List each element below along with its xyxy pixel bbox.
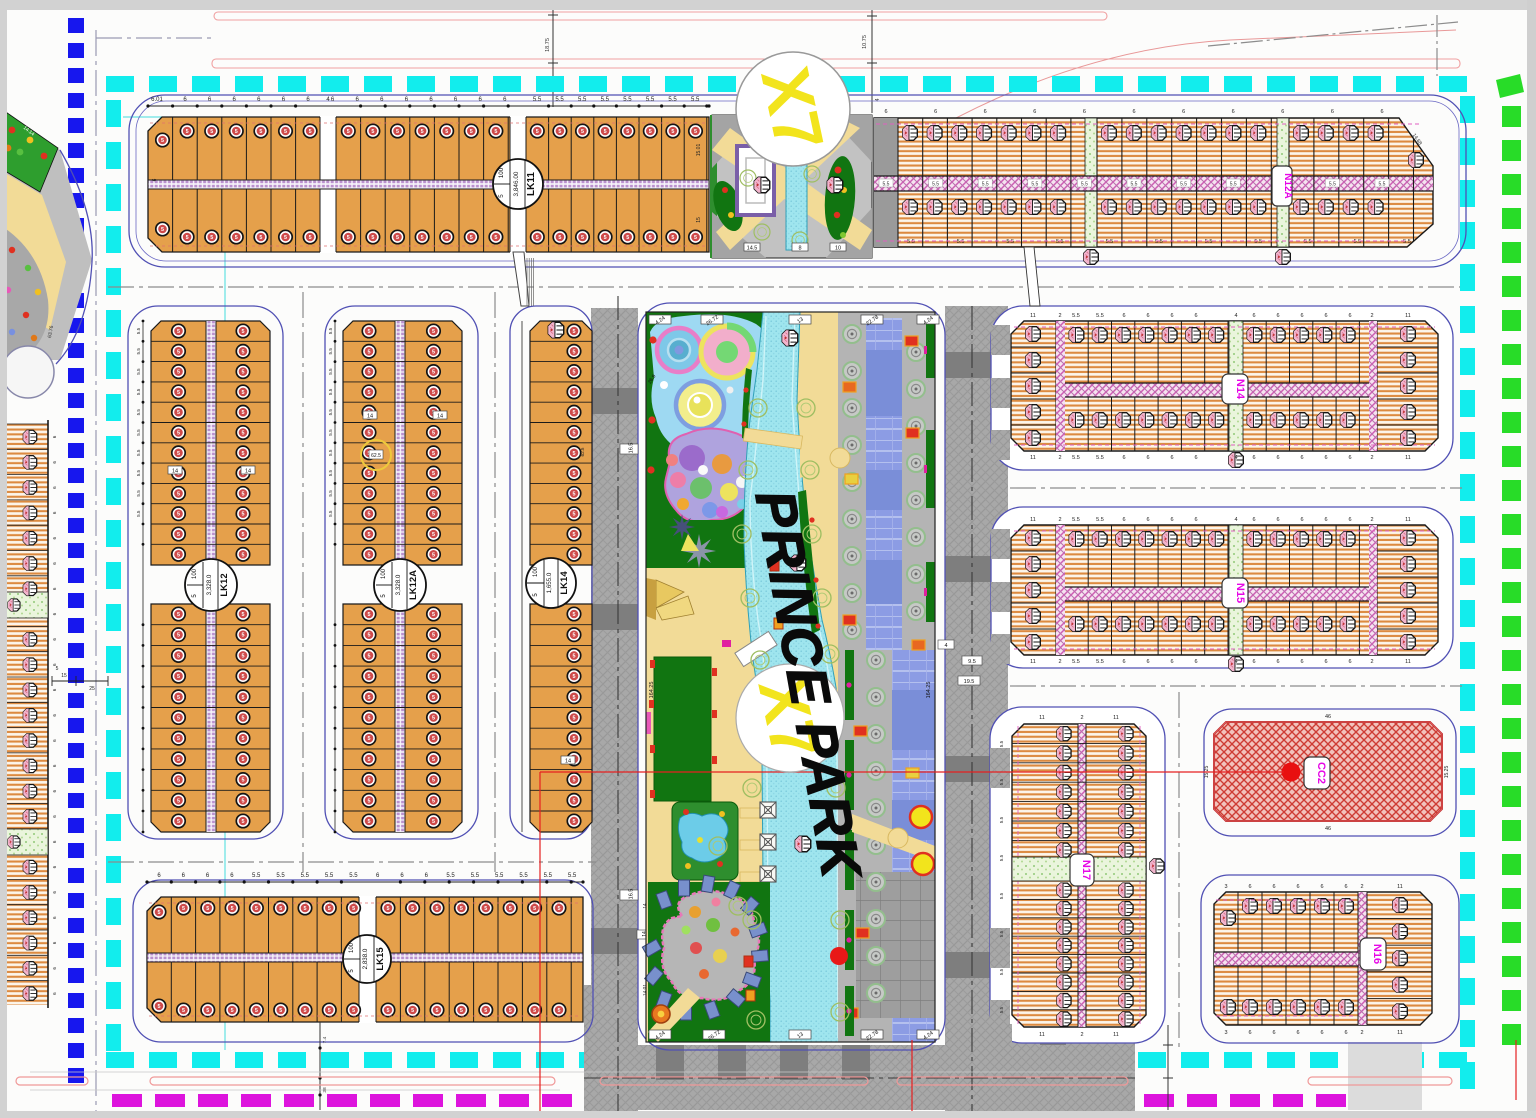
svg-text:5.5: 5.5 [883, 182, 890, 188]
svg-text:11: 11 [1405, 313, 1411, 319]
svg-text:6: 6 [1320, 884, 1323, 890]
svg-text:5.5: 5.5 [1056, 239, 1064, 245]
svg-text:5.5: 5.5 [982, 182, 989, 188]
svg-text:6: 6 [1348, 517, 1351, 523]
svg-text:5.5: 5.5 [1379, 182, 1386, 188]
svg-text:5: 5 [498, 194, 505, 198]
svg-text:11: 11 [1405, 517, 1411, 523]
svg-text:5.5: 5.5 [1304, 239, 1312, 245]
svg-text:6: 6 [934, 109, 937, 115]
svg-text:6: 6 [1170, 659, 1173, 665]
svg-text:2,838.0: 2,838.0 [362, 948, 369, 969]
svg-text:6: 6 [1194, 313, 1197, 319]
svg-text:5.5: 5.5 [136, 469, 141, 476]
svg-text:6: 6 [1146, 313, 1149, 319]
svg-text:11: 11 [1113, 1032, 1119, 1038]
svg-text:6: 6 [52, 815, 57, 818]
svg-text:6: 6 [52, 486, 57, 489]
svg-text:5.5: 5.5 [1329, 182, 1336, 188]
svg-text:5.5: 5.5 [1180, 182, 1187, 188]
svg-text:5.5: 5.5 [957, 239, 965, 245]
svg-text:5.5: 5.5 [136, 368, 141, 375]
svg-text:5.5: 5.5 [446, 873, 455, 879]
svg-text:5.5: 5.5 [1072, 455, 1080, 461]
svg-text:6: 6 [1281, 109, 1284, 115]
svg-text:6: 6 [1344, 884, 1347, 890]
svg-text:LK12: LK12 [219, 573, 230, 596]
svg-text:5.5: 5.5 [328, 429, 333, 436]
svg-text:5.5: 5.5 [568, 873, 577, 879]
svg-text:5.5: 5.5 [328, 449, 333, 456]
svg-text:5.5: 5.5 [1096, 455, 1104, 461]
svg-text:15.01: 15.01 [696, 144, 702, 157]
svg-text:5.5: 5.5 [932, 182, 939, 188]
svg-text:5.5: 5.5 [328, 409, 333, 416]
svg-text:6: 6 [52, 840, 57, 843]
svg-text:LK11: LK11 [526, 172, 537, 196]
svg-text:2: 2 [1058, 313, 1061, 319]
svg-text:4: 4 [1234, 659, 1237, 665]
svg-text:N15: N15 [1234, 583, 1246, 603]
svg-text:5.5: 5.5 [471, 873, 480, 879]
svg-text:6: 6 [1324, 313, 1327, 319]
svg-text:1,655.0: 1,655.0 [546, 572, 553, 593]
svg-text:5.5: 5.5 [1354, 239, 1362, 245]
svg-text:6: 6 [1252, 313, 1255, 319]
svg-text:6: 6 [1194, 659, 1197, 665]
svg-text:2: 2 [1370, 455, 1373, 461]
svg-text:6: 6 [52, 789, 57, 792]
svg-text:5.5: 5.5 [328, 348, 333, 355]
svg-text:2: 2 [1370, 517, 1373, 523]
svg-text:6: 6 [1146, 659, 1149, 665]
svg-text:5.5: 5.5 [999, 1006, 1004, 1013]
svg-text:62.5: 62.5 [580, 447, 585, 456]
svg-text:6: 6 [1033, 109, 1036, 115]
svg-text:11: 11 [1397, 1030, 1403, 1036]
svg-text:4: 4 [944, 643, 947, 649]
svg-text:5.5: 5.5 [1031, 182, 1038, 188]
svg-text:5.5: 5.5 [1096, 659, 1104, 665]
svg-text:2: 2 [1370, 313, 1373, 319]
svg-text:6: 6 [1232, 109, 1235, 115]
svg-text:5.5: 5.5 [668, 97, 677, 103]
svg-text:6: 6 [1276, 455, 1279, 461]
svg-text:14: 14 [565, 759, 571, 765]
svg-text:3,328.0: 3,328.0 [395, 574, 402, 595]
svg-text:100: 100 [381, 568, 387, 579]
svg-text:6: 6 [52, 461, 57, 464]
svg-text:5.5: 5.5 [328, 510, 333, 517]
svg-text:6: 6 [52, 511, 57, 514]
svg-text:18.75: 18.75 [545, 38, 551, 52]
svg-text:5.5: 5.5 [276, 873, 285, 879]
svg-text:6: 6 [52, 916, 57, 919]
svg-text:5.5: 5.5 [136, 348, 141, 355]
svg-text:5.5: 5.5 [136, 490, 141, 497]
svg-text:11: 11 [1405, 659, 1411, 665]
svg-text:11: 11 [1030, 313, 1036, 319]
svg-text:5.5: 5.5 [136, 449, 141, 456]
svg-text:46: 46 [1325, 826, 1331, 832]
svg-text:6: 6 [1132, 109, 1135, 115]
svg-text:15: 15 [696, 217, 702, 223]
svg-text:6: 6 [1252, 517, 1255, 523]
svg-text:5.5: 5.5 [252, 873, 261, 879]
svg-text:6: 6 [1194, 517, 1197, 523]
svg-text:6: 6 [884, 109, 887, 115]
svg-text:2: 2 [1058, 455, 1061, 461]
svg-text:3: 3 [1224, 884, 1227, 890]
svg-text:5.5: 5.5 [136, 388, 141, 395]
svg-text:19.5: 19.5 [964, 679, 975, 685]
svg-text:5.5: 5.5 [555, 97, 564, 103]
svg-text:164.25: 164.25 [649, 682, 655, 699]
svg-text:2: 2 [1080, 715, 1083, 721]
svg-text:6: 6 [1348, 455, 1351, 461]
svg-text:6: 6 [1122, 313, 1125, 319]
svg-text:5.5: 5.5 [136, 409, 141, 416]
svg-text:5.5: 5.5 [999, 968, 1004, 975]
svg-text:5.5: 5.5 [1205, 239, 1213, 245]
svg-text:5.5: 5.5 [1072, 517, 1080, 523]
svg-text:5.5: 5.5 [328, 469, 333, 476]
svg-text:11: 11 [1030, 659, 1036, 665]
svg-text:5.5: 5.5 [1096, 517, 1104, 523]
svg-text:N16: N16 [1371, 944, 1383, 964]
svg-text:6: 6 [1248, 1030, 1251, 1036]
svg-text:5.5: 5.5 [999, 740, 1004, 747]
svg-text:5.5: 5.5 [328, 388, 333, 395]
svg-text:2: 2 [1370, 659, 1373, 665]
svg-text:4: 4 [1234, 455, 1237, 461]
svg-text:14: 14 [367, 414, 373, 420]
svg-text:7.4: 7.4 [322, 1036, 328, 1043]
svg-text:5.5: 5.5 [328, 490, 333, 497]
svg-text:5.5: 5.5 [136, 327, 141, 334]
svg-text:5.5: 5.5 [1155, 239, 1163, 245]
svg-text:5.5: 5.5 [1131, 182, 1138, 188]
svg-text:5.5: 5.5 [999, 892, 1004, 899]
svg-text:2: 2 [1080, 1032, 1083, 1038]
svg-text:6: 6 [52, 638, 57, 641]
svg-text:6: 6 [52, 714, 57, 717]
svg-text:6: 6 [1348, 313, 1351, 319]
svg-text:5.5: 5.5 [328, 327, 333, 334]
svg-text:5.5: 5.5 [907, 239, 915, 245]
svg-text:6: 6 [1272, 884, 1275, 890]
svg-text:14: 14 [172, 469, 178, 475]
svg-text:5.5: 5.5 [578, 97, 587, 103]
svg-text:5.5: 5.5 [999, 930, 1004, 937]
svg-text:2: 2 [1360, 884, 1363, 890]
svg-text:6: 6 [1182, 109, 1185, 115]
svg-text:14.5: 14.5 [747, 246, 758, 252]
svg-text:6: 6 [1122, 455, 1125, 461]
svg-text:14: 14 [245, 469, 251, 475]
svg-text:6: 6 [1300, 455, 1303, 461]
svg-text:14: 14 [437, 414, 443, 420]
svg-text:5.5: 5.5 [601, 97, 610, 103]
svg-text:6: 6 [52, 688, 57, 691]
svg-text:6: 6 [1324, 517, 1327, 523]
svg-text:11: 11 [1113, 715, 1119, 721]
svg-text:5.5: 5.5 [325, 873, 334, 879]
svg-text:11: 11 [1030, 517, 1036, 523]
svg-text:6: 6 [1296, 1030, 1299, 1036]
svg-text:5.5: 5.5 [1254, 239, 1262, 245]
svg-text:6: 6 [1122, 517, 1125, 523]
svg-text:15: 15 [61, 673, 67, 679]
svg-text:5.5: 5.5 [136, 429, 141, 436]
svg-text:11: 11 [1405, 455, 1411, 461]
svg-text:5.5: 5.5 [999, 778, 1004, 785]
svg-text:6: 6 [1300, 517, 1303, 523]
svg-text:6: 6 [52, 435, 57, 438]
svg-text:6: 6 [1248, 884, 1251, 890]
svg-text:6: 6 [152, 178, 158, 181]
svg-text:2: 2 [1058, 659, 1061, 665]
svg-text:5.5: 5.5 [1072, 659, 1080, 665]
svg-text:6: 6 [1324, 455, 1327, 461]
svg-text:CC2: CC2 [1315, 762, 1327, 784]
svg-text:5: 5 [56, 666, 59, 672]
svg-text:6: 6 [1331, 109, 1334, 115]
svg-text:10: 10 [835, 246, 841, 252]
svg-text:16.5: 16.5 [629, 443, 635, 454]
svg-text:11: 11 [1039, 715, 1045, 721]
svg-text:5.5: 5.5 [349, 873, 358, 879]
svg-text:6: 6 [52, 992, 57, 995]
svg-text:6: 6 [1276, 517, 1279, 523]
svg-text:5.5: 5.5 [533, 97, 542, 103]
svg-text:6: 6 [984, 109, 987, 115]
svg-text:5.5: 5.5 [1081, 182, 1088, 188]
svg-text:LK14: LK14 [559, 571, 570, 595]
svg-text:6: 6 [1324, 659, 1327, 665]
svg-text:6: 6 [52, 562, 57, 565]
svg-text:6: 6 [1170, 313, 1173, 319]
svg-text:5.5: 5.5 [1096, 313, 1104, 319]
svg-text:5.5: 5.5 [544, 873, 553, 879]
svg-text:LK15: LK15 [375, 947, 386, 971]
svg-text:6.01: 6.01 [151, 97, 163, 103]
svg-text:5.5: 5.5 [495, 873, 504, 879]
svg-text:5.5: 5.5 [623, 97, 632, 103]
svg-text:5.5: 5.5 [691, 97, 700, 103]
svg-text:100: 100 [498, 167, 505, 178]
svg-text:100: 100 [192, 568, 198, 579]
svg-text:4: 4 [1234, 313, 1237, 319]
svg-text:6: 6 [1296, 884, 1299, 890]
svg-text:6: 6 [1252, 659, 1255, 665]
svg-text:9.5: 9.5 [968, 659, 976, 665]
svg-text:5.5: 5.5 [646, 97, 655, 103]
svg-text:6: 6 [1276, 659, 1279, 665]
svg-text:6: 6 [52, 739, 57, 742]
svg-text:11: 11 [1397, 884, 1403, 890]
svg-text:6: 6 [1083, 109, 1086, 115]
svg-text:6: 6 [1146, 517, 1149, 523]
svg-text:5.5: 5.5 [1006, 239, 1014, 245]
svg-text:N12A: N12A [1282, 173, 1293, 199]
svg-text:6: 6 [1276, 313, 1279, 319]
svg-text:2: 2 [1360, 1030, 1363, 1036]
svg-text:16.5: 16.5 [629, 889, 635, 900]
svg-text:LK12A: LK12A [408, 570, 419, 600]
svg-text:6: 6 [52, 941, 57, 944]
svg-text:6: 6 [52, 865, 57, 868]
svg-text:4: 4 [1234, 517, 1237, 523]
svg-text:2: 2 [1058, 517, 1061, 523]
svg-text:11: 11 [1039, 1032, 1045, 1038]
svg-text:6: 6 [1122, 659, 1125, 665]
svg-text:6: 6 [1170, 455, 1173, 461]
svg-text:3,846.00: 3,846.00 [513, 171, 520, 196]
svg-text:5.5: 5.5 [519, 873, 528, 879]
svg-text:5.5: 5.5 [301, 873, 310, 879]
svg-text:6: 6 [52, 891, 57, 894]
svg-text:5.5: 5.5 [136, 510, 141, 517]
svg-text:6: 6 [1194, 455, 1197, 461]
svg-text:N17: N17 [1080, 860, 1092, 880]
svg-text:6: 6 [1344, 1030, 1347, 1036]
svg-text:100: 100 [349, 942, 355, 953]
svg-text:5.5: 5.5 [1072, 313, 1080, 319]
svg-text:6: 6 [1348, 659, 1351, 665]
svg-text:5.5: 5.5 [1106, 239, 1114, 245]
svg-text:6: 6 [1300, 659, 1303, 665]
svg-text:6: 6 [1146, 455, 1149, 461]
svg-text:6: 6 [52, 967, 57, 970]
svg-text:5.5: 5.5 [1230, 182, 1237, 188]
svg-text:5.5: 5.5 [328, 368, 333, 375]
svg-text:100: 100 [533, 566, 539, 577]
svg-text:15.25: 15.25 [1444, 766, 1450, 779]
svg-text:6: 6 [1380, 109, 1383, 115]
svg-text:N14: N14 [1234, 379, 1246, 400]
svg-text:46: 46 [1325, 714, 1331, 720]
svg-text:6: 6 [52, 612, 57, 615]
svg-text:25: 25 [89, 686, 95, 692]
svg-text:6: 6 [52, 587, 57, 590]
svg-text:164.25: 164.25 [926, 682, 932, 699]
svg-text:62.5: 62.5 [371, 453, 381, 459]
svg-text:6: 6 [1252, 455, 1255, 461]
svg-text:6: 6 [52, 764, 57, 767]
svg-text:6: 6 [1300, 313, 1303, 319]
svg-text:3: 3 [1224, 1030, 1227, 1036]
svg-text:11: 11 [1030, 455, 1036, 461]
svg-text:6: 6 [1170, 517, 1173, 523]
svg-text:8: 8 [798, 246, 801, 252]
svg-text:5.5: 5.5 [999, 854, 1004, 861]
svg-text:10.75: 10.75 [862, 35, 868, 49]
svg-text:5.5: 5.5 [1403, 239, 1411, 245]
svg-text:6: 6 [1272, 1030, 1275, 1036]
svg-text:6: 6 [52, 536, 57, 539]
svg-text:5.5: 5.5 [999, 816, 1004, 823]
svg-text:3,328.0: 3,328.0 [206, 574, 213, 595]
svg-text:6: 6 [1320, 1030, 1323, 1036]
